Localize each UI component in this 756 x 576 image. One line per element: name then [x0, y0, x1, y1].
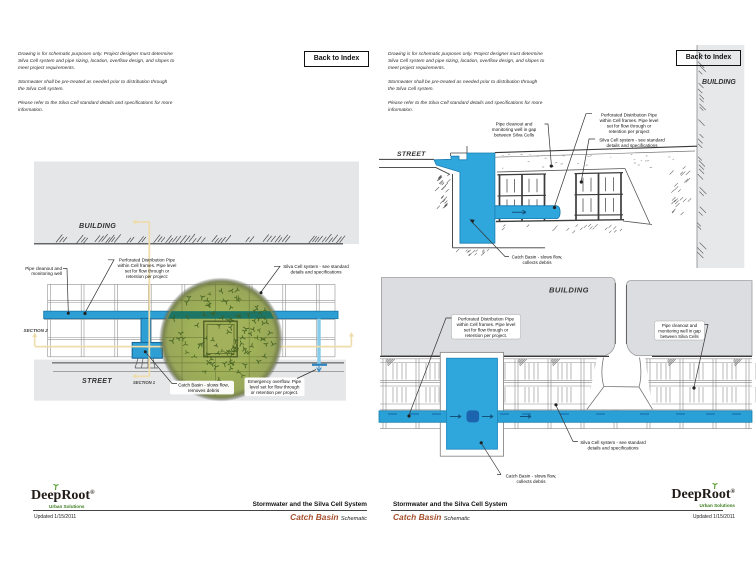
svg-text:Emergency overflow. Pipe: Emergency overflow. Pipe	[248, 379, 302, 384]
svg-text:within Cell frames. Pipe level: within Cell frames. Pipe level	[457, 322, 516, 327]
svg-text:retention per project.: retention per project.	[465, 333, 507, 338]
svg-text:details and specifications: details and specifications	[290, 270, 342, 275]
svg-text:Pipe cleanout and: Pipe cleanout and	[496, 122, 533, 127]
svg-text:Perforated Distribution Pipe: Perforated Distribution Pipe	[119, 258, 176, 263]
svg-text:within Cell frames. Pipe level: within Cell frames. Pipe level	[600, 118, 659, 123]
svg-text:between Silva Cells: between Silva Cells	[494, 133, 535, 138]
svg-text:removes debris: removes debris	[188, 388, 220, 393]
svg-text:retention per project:: retention per project:	[126, 274, 168, 279]
svg-text:monitoring well in gap: monitoring well in gap	[492, 127, 537, 132]
svg-text:details and specifications: details and specifications	[587, 446, 639, 451]
svg-text:details and specifications: details and specifications	[606, 143, 658, 148]
svg-text:retention per project: retention per project	[609, 129, 651, 134]
svg-text:monitoring well in gap: monitoring well in gap	[658, 329, 701, 334]
svg-text:set for flow through or: set for flow through or	[464, 328, 509, 333]
svg-text:Silva Cell system - see standa: Silva Cell system - see standard	[599, 138, 665, 143]
svg-text:BUILDING: BUILDING	[79, 221, 116, 230]
svg-text:Silva Cell system - see standa: Silva Cell system - see standard	[580, 440, 646, 445]
svg-text:between Silva Cells: between Silva Cells	[660, 334, 699, 339]
svg-text:Perforated Distribution Pipe: Perforated Distribution Pipe	[458, 317, 515, 322]
svg-text:monitoring well: monitoring well	[31, 271, 62, 276]
svg-text:level set for flow through: level set for flow through	[250, 385, 300, 390]
svg-text:Silva Cell system - see standa: Silva Cell system - see standard	[283, 264, 349, 269]
svg-text:Catch Basin - slows flow,: Catch Basin - slows flow,	[178, 383, 229, 388]
svg-text:STREET: STREET	[397, 151, 426, 158]
svg-text:STREET: STREET	[82, 378, 112, 385]
svg-text:BUILDING: BUILDING	[549, 286, 589, 295]
svg-text:collects debris: collects debris	[522, 260, 552, 265]
svg-text:Perforated Distribution Pipe: Perforated Distribution Pipe	[601, 113, 658, 118]
svg-text:within Cell frames. Pipe leve: within Cell frames. Pipe level	[118, 263, 177, 268]
svg-text:Pipe cleanout and: Pipe cleanout and	[662, 323, 698, 328]
svg-text:SECTION 2: SECTION 2	[24, 328, 49, 333]
svg-text:BUILDING: BUILDING	[702, 79, 736, 86]
svg-text:collects debris: collects debris	[516, 479, 546, 484]
svg-text:Catch Basin - slows flow,: Catch Basin - slows flow,	[512, 255, 563, 260]
svg-text:or retention per project.: or retention per project.	[251, 390, 299, 395]
svg-text:SECTION 1: SECTION 1	[133, 380, 156, 385]
svg-text:set for flow through or: set for flow through or	[607, 124, 652, 129]
svg-text:set for flow through or: set for flow through or	[125, 269, 170, 274]
svg-text:Catch Basin - slows flow,: Catch Basin - slows flow,	[506, 474, 557, 479]
